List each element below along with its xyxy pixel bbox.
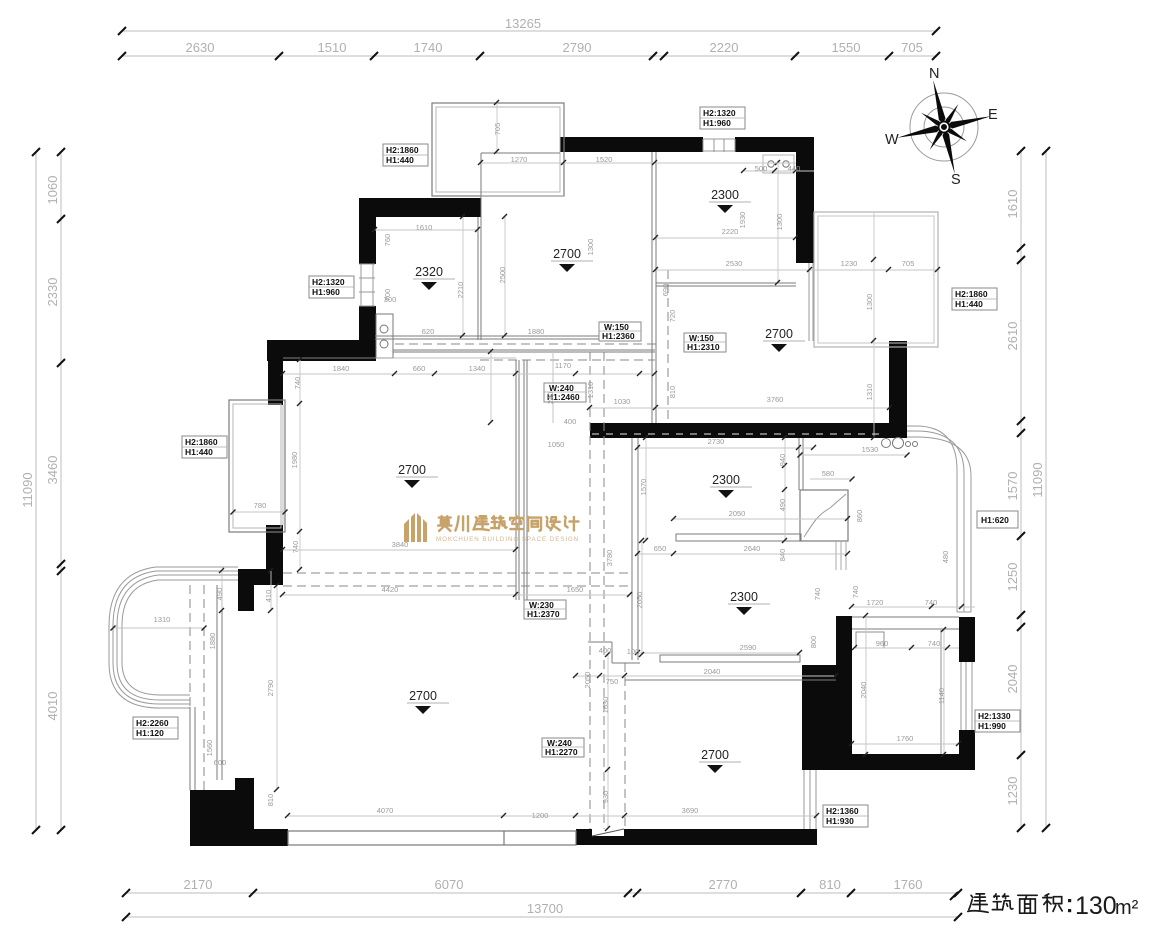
svg-text:4010: 4010 (45, 692, 60, 721)
svg-text:1570: 1570 (1005, 472, 1020, 501)
svg-text:1720: 1720 (867, 598, 884, 607)
svg-text:810: 810 (266, 794, 275, 807)
svg-text:H1:440: H1:440 (185, 447, 213, 457)
svg-text:740: 740 (813, 588, 822, 601)
svg-text:2220: 2220 (710, 40, 739, 55)
svg-text:1270: 1270 (511, 155, 528, 164)
svg-text:740: 740 (851, 586, 860, 599)
svg-text:2790: 2790 (266, 680, 275, 697)
svg-text:1520: 1520 (596, 155, 613, 164)
svg-text:240: 240 (546, 392, 555, 405)
svg-text:MOKCHUEN BUILDING SPACE DESIGN: MOKCHUEN BUILDING SPACE DESIGN (436, 536, 579, 543)
svg-text:300: 300 (384, 295, 397, 304)
svg-text:6070: 6070 (435, 877, 464, 892)
svg-text:4420: 4420 (382, 585, 399, 594)
svg-text:480: 480 (941, 551, 950, 564)
svg-text:1140: 1140 (937, 688, 946, 704)
svg-text:1930: 1930 (738, 212, 747, 229)
svg-text:2210: 2210 (456, 282, 465, 299)
svg-text:H1:2310: H1:2310 (687, 342, 720, 352)
svg-text:1310: 1310 (586, 382, 595, 399)
svg-text:2170: 2170 (184, 877, 213, 892)
svg-text:1170: 1170 (555, 361, 571, 370)
svg-text:720: 720 (668, 310, 677, 323)
svg-text:1650: 1650 (567, 585, 584, 594)
svg-text:860: 860 (855, 510, 864, 523)
svg-text:440: 440 (788, 164, 801, 173)
svg-text:930: 930 (601, 791, 610, 804)
svg-text:1230: 1230 (841, 259, 858, 268)
svg-text:13700: 13700 (527, 901, 563, 916)
svg-text:H1:2360: H1:2360 (602, 331, 635, 341)
svg-text:H1:120: H1:120 (136, 728, 164, 738)
svg-text:4070: 4070 (377, 806, 394, 815)
svg-text:H2:1860: H2:1860 (185, 437, 218, 447)
svg-text:1300: 1300 (775, 214, 784, 231)
svg-text:H2:1320: H2:1320 (703, 108, 736, 118)
svg-text:780: 780 (254, 501, 267, 510)
svg-text:740: 740 (925, 598, 938, 607)
svg-text:W: W (885, 132, 899, 148)
svg-text:1230: 1230 (1005, 777, 1020, 806)
svg-text:13265: 13265 (505, 16, 541, 31)
svg-text:960: 960 (876, 639, 889, 648)
svg-text:2700: 2700 (409, 689, 437, 703)
svg-text:1760: 1760 (897, 734, 914, 743)
svg-text:740: 740 (928, 639, 941, 648)
svg-text:2040: 2040 (1005, 665, 1020, 694)
svg-text:1340: 1340 (469, 364, 486, 373)
svg-text:1030: 1030 (614, 397, 631, 406)
svg-text:600: 600 (214, 758, 227, 767)
svg-text:410: 410 (264, 590, 273, 603)
svg-text:H1:960: H1:960 (312, 287, 340, 297)
svg-text:2300: 2300 (730, 590, 758, 604)
svg-text:705: 705 (901, 40, 923, 55)
svg-text:2700: 2700 (553, 247, 581, 261)
svg-text:810: 810 (819, 877, 841, 892)
svg-text:660: 660 (413, 364, 426, 373)
svg-text:1840: 1840 (333, 364, 350, 373)
svg-text:2330: 2330 (45, 278, 60, 307)
svg-text:1510: 1510 (318, 40, 347, 55)
svg-text:H1:990: H1:990 (978, 721, 1006, 731)
svg-text:1880: 1880 (208, 633, 217, 650)
svg-text:760: 760 (383, 234, 392, 247)
svg-text:1760: 1760 (894, 877, 923, 892)
svg-text:1740: 1740 (414, 40, 443, 55)
svg-text:1200: 1200 (532, 811, 549, 820)
svg-text:2300: 2300 (712, 473, 740, 487)
svg-text:1610: 1610 (416, 223, 433, 232)
svg-text:2610: 2610 (1005, 322, 1020, 351)
svg-text:2770: 2770 (709, 877, 738, 892)
svg-text:1550: 1550 (832, 40, 861, 55)
svg-text:2630: 2630 (186, 40, 215, 55)
svg-text:2320: 2320 (415, 265, 443, 279)
svg-text:3780: 3780 (605, 550, 614, 567)
svg-text:650: 650 (654, 544, 667, 553)
svg-text:H2:2260: H2:2260 (136, 718, 169, 728)
svg-text:2050: 2050 (729, 509, 746, 518)
svg-text:1880: 1880 (528, 327, 545, 336)
svg-text:810: 810 (668, 386, 677, 399)
svg-text:H1:440: H1:440 (386, 155, 414, 165)
svg-text:800: 800 (809, 636, 818, 649)
svg-text:2050: 2050 (635, 592, 644, 609)
svg-text:1610: 1610 (1005, 190, 1020, 219)
svg-text:2790: 2790 (563, 40, 592, 55)
svg-text:1980: 1980 (290, 452, 299, 469)
svg-text:100: 100 (627, 647, 640, 656)
svg-text:H1:960: H1:960 (703, 118, 731, 128)
svg-text:490: 490 (215, 588, 224, 601)
svg-text:3690: 3690 (682, 806, 699, 815)
svg-text:940: 940 (778, 454, 787, 467)
svg-text:1530: 1530 (862, 445, 879, 454)
svg-text:750: 750 (606, 677, 619, 686)
svg-text:H1:2370: H1:2370 (527, 609, 560, 619)
svg-text:1300: 1300 (586, 239, 595, 256)
svg-text:11090: 11090 (20, 472, 35, 507)
svg-text:H1:620: H1:620 (981, 515, 1009, 525)
svg-text:m²: m² (1115, 897, 1139, 919)
svg-text:E: E (988, 107, 998, 123)
svg-text:1050: 1050 (548, 440, 565, 449)
svg-text:690: 690 (661, 284, 670, 297)
svg-text:1560: 1560 (205, 740, 214, 757)
svg-text:H1:2270: H1:2270 (545, 747, 578, 757)
svg-text:1630: 1630 (601, 697, 610, 714)
svg-text:H2:1320: H2:1320 (312, 277, 345, 287)
svg-text:1570: 1570 (639, 479, 648, 496)
svg-text:2500: 2500 (498, 267, 507, 284)
svg-text:H1:930: H1:930 (826, 816, 854, 826)
svg-text:740: 740 (293, 377, 302, 390)
svg-text:2050: 2050 (583, 672, 592, 689)
svg-text:1250: 1250 (1005, 563, 1020, 592)
svg-text:500: 500 (755, 164, 768, 173)
svg-text:400: 400 (599, 646, 612, 655)
svg-text:H2:1360: H2:1360 (826, 806, 859, 816)
svg-text:1060: 1060 (45, 176, 60, 205)
svg-text:S: S (951, 172, 961, 188)
svg-text:2590: 2590 (740, 643, 757, 652)
svg-text:3760: 3760 (767, 395, 784, 404)
svg-text:2300: 2300 (711, 188, 739, 202)
svg-text:2040: 2040 (859, 682, 868, 699)
svg-text:N: N (929, 66, 939, 82)
svg-text:580: 580 (822, 469, 835, 478)
svg-text:2220: 2220 (722, 227, 739, 236)
svg-text:740: 740 (291, 541, 300, 554)
svg-text:2700: 2700 (765, 327, 793, 341)
svg-text:H2:1860: H2:1860 (386, 145, 419, 155)
svg-text:H1:440: H1:440 (955, 299, 983, 309)
svg-text:2640: 2640 (744, 544, 761, 553)
svg-text:11090: 11090 (1030, 462, 1045, 497)
svg-text:620: 620 (422, 327, 435, 336)
svg-text:705: 705 (902, 259, 915, 268)
svg-text:2700: 2700 (398, 463, 426, 477)
svg-text:705: 705 (493, 123, 502, 136)
svg-text:2700: 2700 (701, 748, 729, 762)
svg-text:490: 490 (778, 499, 787, 512)
svg-text:1300: 1300 (865, 294, 874, 311)
svg-text:H2:1860: H2:1860 (955, 289, 988, 299)
svg-text:3460: 3460 (45, 456, 60, 485)
svg-text:130: 130 (1075, 892, 1117, 920)
svg-text:1310: 1310 (865, 384, 874, 401)
svg-text:1310: 1310 (154, 615, 171, 624)
svg-text:2040: 2040 (704, 667, 721, 676)
svg-text:400: 400 (564, 417, 577, 426)
svg-text:840: 840 (778, 549, 787, 562)
svg-text:H2:1330: H2:1330 (978, 711, 1011, 721)
svg-text:2530: 2530 (726, 259, 743, 268)
svg-text:2730: 2730 (708, 437, 725, 446)
